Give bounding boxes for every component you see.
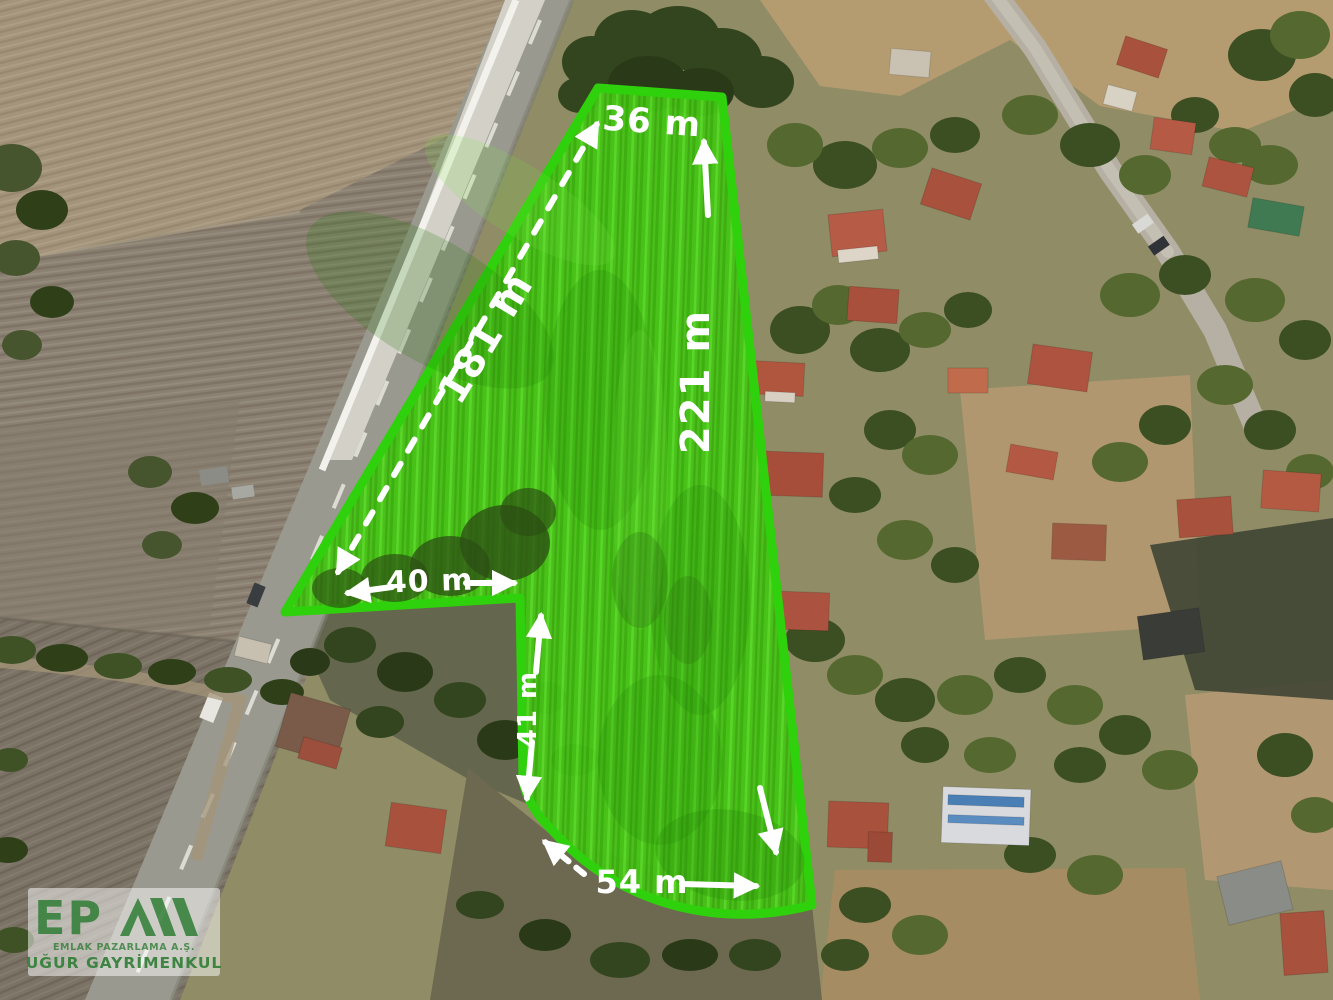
dimension-label-bottom: 54 m — [595, 863, 688, 901]
dimension-label-inner-height: 41 m — [513, 671, 543, 747]
arrow-221m-top — [704, 142, 708, 215]
agency-logo: EP EMLAK PAZARLAMA A.Ş. UĞUR GAYRİMENKUL — [26, 888, 223, 976]
aerial-listing-photo: 36 m 181 m 221 m 40 m 41 m 54 m EP EMLAK… — [0, 0, 1333, 1000]
dimension-label-right: 221 m — [673, 310, 719, 454]
arrow-54m-right — [682, 884, 756, 886]
logo-tagline: EMLAK PAZARLAMA A.Ş. — [53, 942, 195, 953]
logo-monogram: EP — [34, 891, 103, 945]
logo-company-name: UĞUR GAYRİMENKUL — [26, 953, 223, 972]
aerial-photo-canvas: 36 m 181 m 221 m 40 m 41 m 54 m EP EMLAK… — [0, 0, 1333, 1000]
dimension-label-top: 36 m — [601, 99, 702, 146]
dimension-label-inner-width: 40 m — [385, 562, 474, 600]
